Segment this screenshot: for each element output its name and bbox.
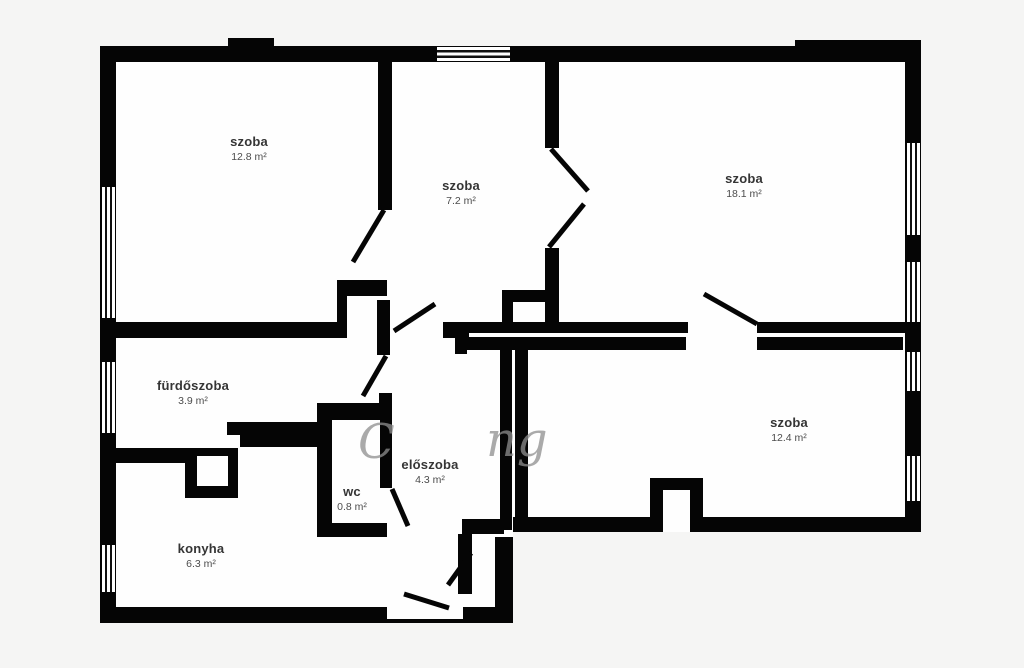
room-name: szoba (442, 178, 480, 193)
room-area: 3.9 m² (157, 395, 229, 407)
room-name: szoba (230, 134, 268, 149)
door-swing-icon (394, 304, 435, 331)
room-area: 6.3 m² (178, 558, 225, 570)
room-name: szoba (770, 415, 808, 430)
room-area: 12.4 m² (770, 432, 808, 444)
floor-plan: szoba 12.8 m² szoba 7.2 m² szoba 18.1 m²… (0, 0, 1024, 668)
door-swing-icon (549, 204, 584, 247)
room-label-szoba-1: szoba 12.8 m² (230, 134, 268, 163)
room-label-eloszoba: előszoba 4.3 m² (401, 457, 458, 486)
room-area: 12.8 m² (230, 151, 268, 163)
room-label-konyha: konyha 6.3 m² (178, 541, 225, 570)
room-label-szoba-2: szoba 7.2 m² (442, 178, 480, 207)
door-swing-icon (392, 489, 408, 526)
room-label-furdoszoba: fürdőszoba 3.9 m² (157, 378, 229, 407)
room-area: 18.1 m² (725, 188, 763, 200)
room-label-szoba-3: szoba 18.1 m² (725, 171, 763, 200)
room-area: 4.3 m² (401, 474, 458, 486)
room-name: fürdőszoba (157, 378, 229, 393)
door-swing-icon (551, 149, 588, 191)
door-swing-layer (0, 0, 1024, 668)
room-name: szoba (725, 171, 763, 186)
room-area: 0.8 m² (337, 501, 367, 513)
room-label-wc: wc 0.8 m² (337, 484, 367, 513)
door-swing-icon (704, 294, 757, 324)
door-swing-icon (353, 210, 384, 262)
room-name: előszoba (401, 457, 458, 472)
door-swing-icon (363, 356, 386, 396)
door-swing-icon (404, 594, 449, 608)
room-label-szoba-4: szoba 12.4 m² (770, 415, 808, 444)
room-name: konyha (178, 541, 225, 556)
door-swing-icon (448, 553, 471, 585)
room-area: 7.2 m² (442, 195, 480, 207)
room-name: wc (337, 484, 367, 499)
